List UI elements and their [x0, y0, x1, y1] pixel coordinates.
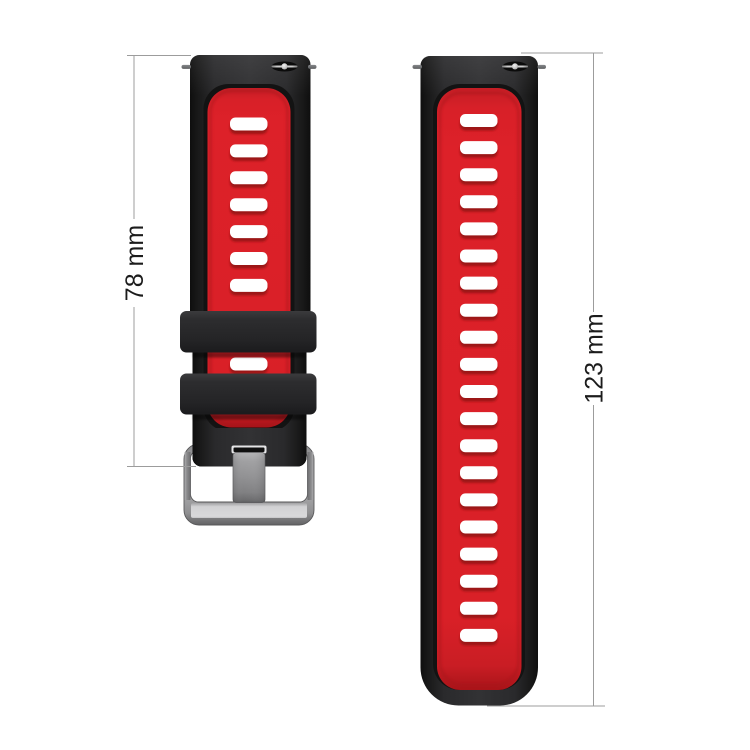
- svg-text:78 mm: 78 mm: [121, 225, 149, 301]
- svg-text:123 mm: 123 mm: [581, 313, 609, 403]
